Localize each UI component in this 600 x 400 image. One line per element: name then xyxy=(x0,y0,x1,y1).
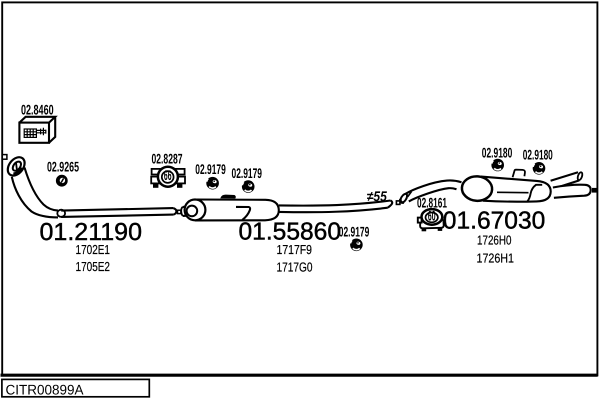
svg-text:60: 60 xyxy=(428,208,436,224)
svg-text:1702E1: 1702E1 xyxy=(76,242,111,257)
svg-text:02.9180: 02.9180 xyxy=(482,145,513,161)
svg-text:02.8287: 02.8287 xyxy=(152,151,183,167)
svg-text:1705E2: 1705E2 xyxy=(76,259,111,274)
svg-text:1717F9: 1717F9 xyxy=(277,242,313,257)
svg-text:≠55: ≠55 xyxy=(367,188,387,204)
svg-text:02.9179: 02.9179 xyxy=(232,165,263,181)
svg-text:1726H1: 1726H1 xyxy=(477,250,515,265)
svg-text:02.9179: 02.9179 xyxy=(195,161,226,177)
svg-text:02.9265: 02.9265 xyxy=(47,159,79,175)
svg-text:66: 66 xyxy=(164,167,172,183)
svg-text:02.9179: 02.9179 xyxy=(339,223,370,239)
svg-text:02.9180: 02.9180 xyxy=(523,147,553,163)
svg-text:CITR00899A: CITR00899A xyxy=(6,381,85,397)
svg-text:01.67030: 01.67030 xyxy=(443,208,546,235)
svg-text:1717G0: 1717G0 xyxy=(277,260,313,275)
svg-text:1726H0: 1726H0 xyxy=(477,232,512,247)
svg-text:02.8460: 02.8460 xyxy=(21,102,54,118)
